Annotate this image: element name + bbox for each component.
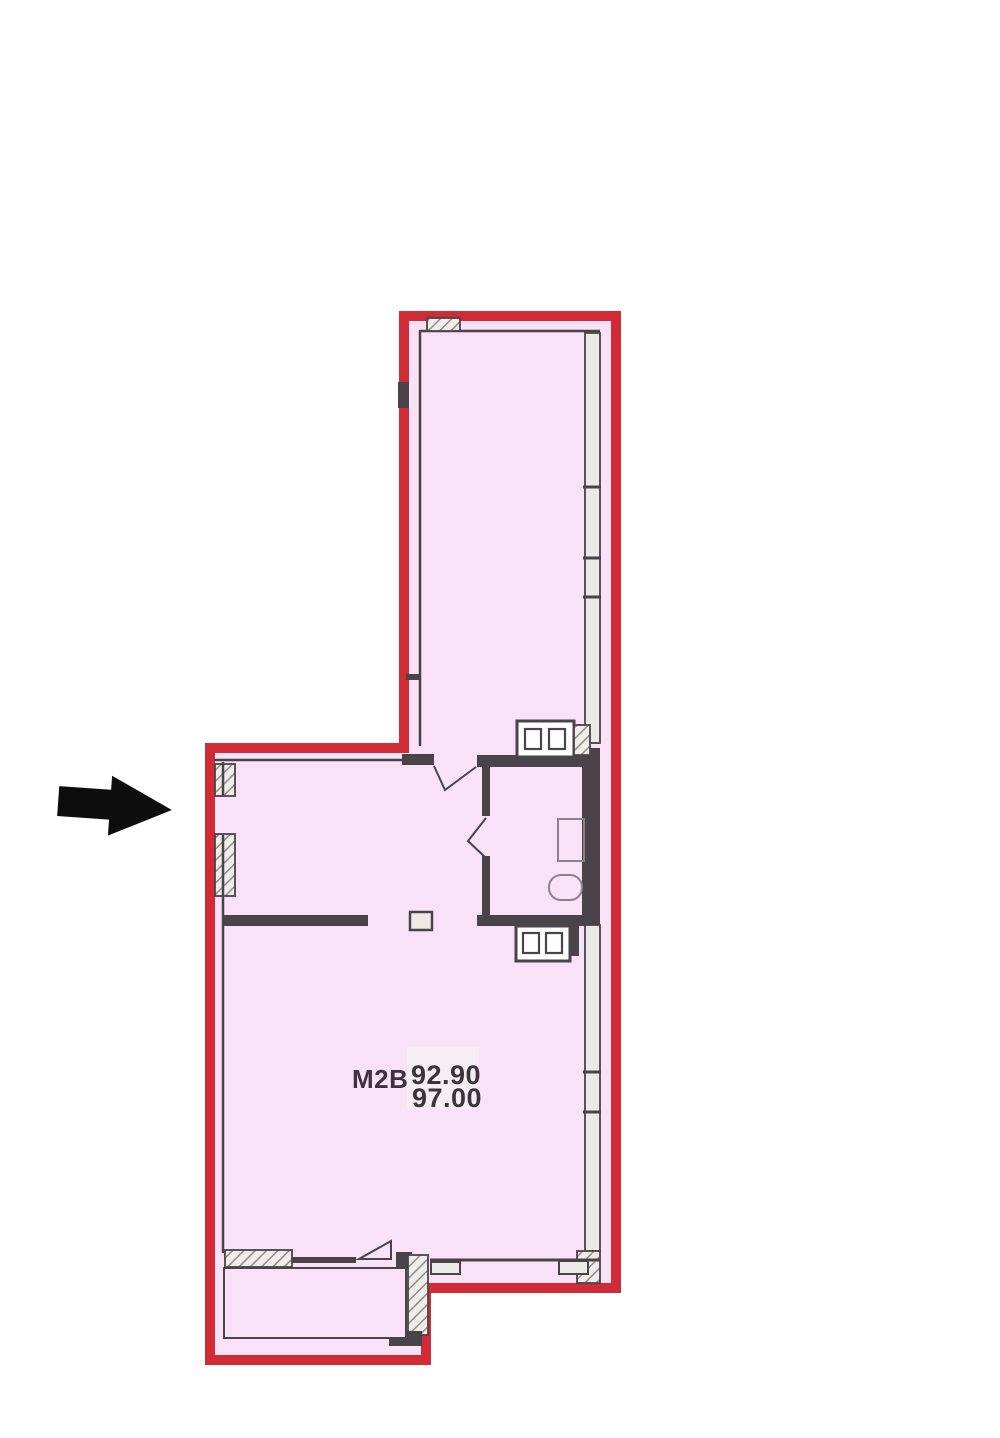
floorplan-page: M2B 92.90 97.00 — [0, 0, 1000, 1438]
balcony — [224, 1268, 406, 1338]
bottom-window-sill-left — [431, 1262, 460, 1274]
vent-shaft-top-cell — [549, 729, 565, 749]
balcony-window-sill — [225, 1250, 292, 1267]
floorplan-svg: M2B 92.90 97.00 — [0, 0, 1000, 1438]
hall-bottom-wall-left — [222, 915, 368, 926]
bathroom-left-wall-top — [482, 764, 490, 816]
vent-shaft-bottom-cell — [523, 933, 539, 953]
vent-shaft-bottom-connector — [570, 926, 579, 956]
right-window-band-bottom — [585, 925, 600, 1251]
entrance-pier-top — [215, 764, 235, 796]
unit-label: M2B — [352, 1064, 408, 1094]
hall-bottom-wall-right — [477, 915, 600, 926]
vent-shaft-top-cell — [525, 729, 541, 749]
balcony-inner-outline — [224, 1268, 406, 1338]
balcony-wall-line — [292, 1257, 356, 1263]
vent-shaft-top-pier — [574, 725, 590, 755]
entrance-pier-bottom — [215, 834, 235, 896]
vent-shaft-bottom-cell — [546, 933, 562, 953]
left-wall-tick — [406, 674, 421, 680]
bottom-window-sill-right — [559, 1261, 588, 1274]
bathroom-left-wall-bottom — [482, 856, 490, 920]
entrance-arrow-icon — [56, 772, 174, 840]
left-wall-notch — [398, 382, 409, 408]
top-window-sill — [427, 318, 460, 331]
right-window-band-top — [585, 333, 600, 743]
apartment-fill — [210, 316, 616, 1360]
balcony-column — [408, 1255, 428, 1335]
hall-column — [410, 912, 432, 930]
area-value-2: 97.00 — [412, 1083, 482, 1113]
door-jamb-stub — [402, 754, 434, 765]
